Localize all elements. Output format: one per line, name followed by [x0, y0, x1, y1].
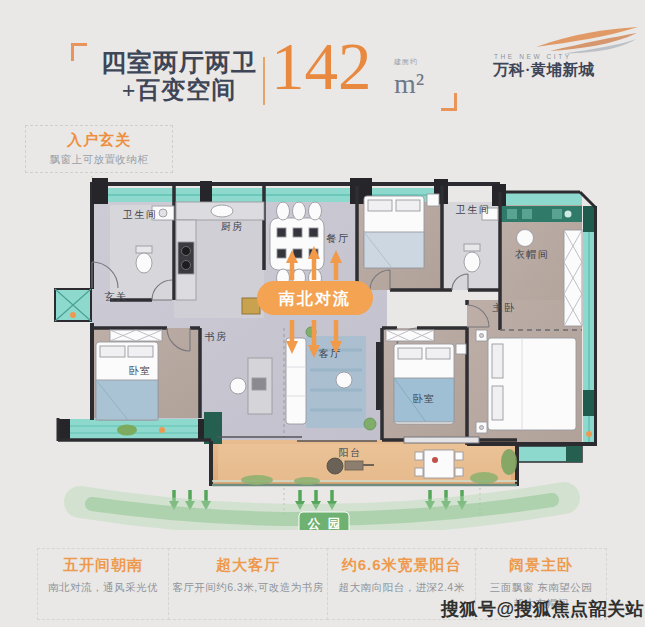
room-label-bath-right: 卫生间	[456, 204, 491, 215]
entry-callout: 入户玄关 飘窗上可放置收纳柜	[25, 125, 173, 173]
area-value: 142	[271, 33, 372, 100]
room-label-balcony: 阳台	[339, 447, 362, 458]
feature-south-facing: 五开间朝南 南北对流，通风采光优	[37, 548, 169, 620]
watermark: 搜狐号@搜狐焦点韶关站	[441, 597, 644, 621]
area-prefix: 建面约	[394, 57, 424, 67]
feature-desc: 客厅开间约6.3米,可改造为书房	[171, 581, 325, 595]
room-label-dining: 餐厅	[327, 233, 350, 244]
logo-tagline: THE NEW CITY	[494, 53, 572, 60]
entry-callout-title: 入户玄关	[26, 131, 172, 150]
logo-swoosh-icon	[534, 26, 640, 54]
feature-desc: 超大南向阳台，进深2.4米	[330, 581, 473, 595]
room-label-bath-top: 卫生间	[123, 209, 158, 220]
room-label-living: 客厅	[319, 348, 342, 359]
park-badge-label: 公 园	[307, 517, 342, 530]
feature-title: 超大客厅	[171, 556, 325, 575]
feature-title: 五开间朝南	[40, 556, 166, 575]
entry-callout-subtitle: 飘窗上可放置收纳柜	[26, 153, 172, 167]
flow-badge-label: 南北对流	[278, 289, 351, 307]
title-line1: 四室两厅两卫	[88, 49, 270, 77]
area-unit-block: 建面约 m²	[394, 57, 424, 100]
area-unit: m²	[394, 68, 424, 100]
room-label-master: 主卧	[492, 302, 516, 313]
feature-desc: 三面飘窗 东南望公园	[478, 581, 604, 595]
room-label-bedroom-mid: 卧室	[413, 393, 436, 404]
logo-name: 万科·黄埔新城	[493, 60, 595, 81]
feature-title: 阔景主卧	[478, 556, 604, 575]
feature-living-room: 超大客厅 客厅开间约6.3米,可改造为书房	[168, 548, 328, 620]
feature-desc: 南北对流，通风采光优	[40, 581, 166, 595]
page-title: 四室两厅两卫 +百变空间	[88, 49, 270, 104]
title-line2: +百变空间	[88, 77, 270, 104]
room-label-cloakroom: 衣帽间	[515, 249, 550, 260]
header-divider	[263, 57, 265, 105]
room-label-kitchen: 厨房	[221, 221, 244, 232]
corner-bracket-icon	[441, 93, 457, 111]
floor-plan: 卫生间 厨房 餐厅 卫生间 衣帽间 玄关 主卧 卧室 书房 客厅 卧室 阳台 南…	[52, 150, 597, 530]
poster: 四室两厅两卫 +百变空间 142 建面约 m² THE NEW CITY 万科·…	[0, 0, 645, 627]
room-label-study: 书房	[205, 331, 228, 342]
corner-bracket-icon	[71, 43, 87, 61]
room-label-entry: 玄关	[105, 291, 128, 302]
room-label-bedroom-left: 卧室	[129, 365, 152, 376]
feature-title: 约6.6米宽景阳台	[330, 556, 473, 575]
